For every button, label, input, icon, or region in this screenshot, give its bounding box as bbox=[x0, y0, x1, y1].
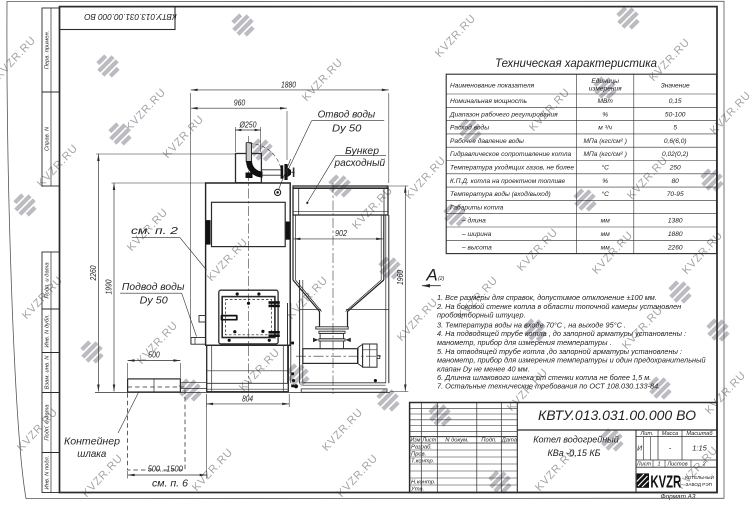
svg-text:Лит.: Лит. bbox=[639, 431, 653, 437]
svg-text:80: 80 bbox=[672, 178, 680, 185]
svg-text:2260: 2260 bbox=[89, 265, 98, 281]
svg-text:Лист: Лист bbox=[636, 462, 652, 468]
svg-text:50-100: 50-100 bbox=[665, 111, 686, 118]
svg-text:Подвод воды: Подвод воды bbox=[122, 282, 185, 293]
svg-text:Взам. инв. N: Взам. инв. N bbox=[44, 355, 50, 390]
svg-text:Значение: Значение bbox=[661, 82, 690, 89]
svg-text:мм: мм bbox=[601, 218, 611, 225]
svg-text:Т.контр.: Т.контр. bbox=[411, 459, 434, 465]
svg-text:Дата: Дата bbox=[501, 438, 518, 444]
svg-text:Гидравлическое сопротивление к: Гидравлическое сопротивление котла bbox=[450, 150, 571, 158]
svg-text:500...1500: 500...1500 bbox=[148, 465, 184, 474]
svg-text:МПа (кгс/см² ): МПа (кгс/см² ) bbox=[583, 138, 626, 145]
svg-text:см. п. 2: см. п. 2 bbox=[131, 225, 178, 237]
svg-text:3. Температура воды на входе: 3. Температура воды на входе 70°С , на в… bbox=[437, 321, 626, 330]
svg-text:КВа -0,15 КБ: КВа -0,15 КБ bbox=[548, 448, 601, 458]
svg-text:Номинальная мощность: Номинальная мощность bbox=[450, 98, 528, 105]
svg-text:Лист: Лист bbox=[421, 438, 436, 444]
svg-text:Расход воды: Расход воды bbox=[450, 124, 489, 132]
svg-text:измерения: измерения bbox=[589, 85, 622, 92]
svg-text:0,02(0,2): 0,02(0,2) bbox=[662, 151, 688, 158]
svg-text:1:15: 1:15 bbox=[692, 444, 707, 453]
svg-text:%: % bbox=[602, 111, 608, 118]
svg-text:Н.контр.: Н.контр. bbox=[411, 480, 436, 486]
svg-text:Справ. N: Справ. N bbox=[44, 126, 50, 151]
svg-text:К.П.Д. котла на проектном топл: К.П.Д. котла на проектном топливе bbox=[450, 178, 565, 185]
svg-text:Отвод воды: Отвод воды bbox=[318, 109, 376, 120]
svg-text:Температура воды (вход/выход): Температура воды (вход/выход) bbox=[450, 190, 551, 198]
svg-text:мм: мм bbox=[601, 231, 611, 238]
svg-text:Контейнер: Контейнер bbox=[64, 436, 120, 448]
svg-text:1880: 1880 bbox=[668, 231, 683, 238]
svg-text:Единицы: Единицы bbox=[591, 77, 619, 85]
svg-text:1380: 1380 bbox=[668, 218, 683, 225]
svg-text:Формат А3: Формат А3 bbox=[661, 494, 696, 501]
svg-text:Ø250: Ø250 bbox=[239, 120, 257, 129]
svg-text:ЗАВОД РЭП: ЗАВОД РЭП bbox=[686, 482, 712, 487]
svg-text:4. На подводящей трубе котла: 4. На подводящей трубе котла , до запорн… bbox=[437, 329, 686, 338]
svg-text:Пров.: Пров. bbox=[411, 452, 426, 458]
svg-text:шлака: шлака bbox=[77, 448, 106, 460]
svg-text:см. п. 6: см. п. 6 bbox=[152, 479, 188, 490]
svg-text:(2): (2) bbox=[438, 276, 444, 282]
svg-text:1880: 1880 bbox=[281, 80, 296, 89]
svg-text:250: 250 bbox=[669, 164, 681, 171]
svg-text:Инв. N подл.: Инв. N подл. bbox=[44, 456, 50, 490]
svg-text:МВт: МВт bbox=[598, 98, 614, 105]
svg-text:манометр, прибор для измерения: манометр, прибор для измерения температу… bbox=[437, 338, 612, 347]
svg-text:1. Все размеры для справок, д: 1. Все размеры для справок, допустимое о… bbox=[437, 293, 657, 302]
svg-text:Рабочее давление воды: Рабочее давление воды bbox=[450, 137, 524, 145]
svg-text:Изм: Изм bbox=[410, 438, 420, 444]
svg-text:Dy 50: Dy 50 bbox=[140, 294, 168, 306]
svg-text:N докум.: N докум. bbox=[445, 438, 468, 444]
svg-text:Котел водогрейный: Котел водогрейный bbox=[533, 435, 619, 445]
svg-text:Масштаб: Масштаб bbox=[686, 431, 713, 437]
svg-text:%: % bbox=[602, 178, 608, 185]
svg-text:А: А bbox=[425, 266, 437, 285]
svg-text:0,15: 0,15 bbox=[669, 98, 682, 105]
svg-text:2260: 2260 bbox=[667, 244, 683, 251]
svg-text:960: 960 bbox=[234, 98, 246, 107]
svg-text:Разраб.: Разраб. bbox=[411, 445, 432, 451]
svg-text:902: 902 bbox=[335, 229, 347, 238]
svg-text:мм: мм bbox=[601, 244, 611, 251]
svg-text:Листов: Листов bbox=[666, 462, 687, 468]
svg-text:Диапазон рабочего регулировани: Диапазон рабочего регулирования bbox=[449, 110, 558, 118]
svg-text:Dy 50: Dy 50 bbox=[332, 122, 362, 134]
svg-text:5: 5 bbox=[673, 125, 677, 132]
svg-text:0,6(6,0): 0,6(6,0) bbox=[664, 138, 687, 145]
svg-text:Температура уходящих газов, не: Температура уходящих газов, не более bbox=[450, 163, 574, 171]
svg-text:7. Остальные технические треб: 7. Остальные технические требования по О… bbox=[437, 382, 660, 391]
svg-text:Подп. и дата: Подп. и дата bbox=[44, 262, 50, 299]
svg-text:1990: 1990 bbox=[104, 279, 113, 294]
svg-text:1: 1 bbox=[657, 462, 660, 468]
svg-text:КОТЕЛЬНЫЙ: КОТЕЛЬНЫЙ bbox=[685, 473, 714, 480]
svg-text:1960: 1960 bbox=[396, 270, 405, 285]
svg-text:Утв.: Утв. bbox=[410, 487, 424, 493]
svg-text:2. На боковой стенке котла в: 2. На боковой стенке котла в области топ… bbox=[436, 302, 681, 311]
svg-text:Техническая характеристика: Техническая характеристика bbox=[495, 58, 657, 70]
svg-text:Наименование показателя: Наименование показателя bbox=[450, 82, 535, 89]
svg-text:КВТУ.013.031.00.000 ВО: КВТУ.013.031.00.000 ВО bbox=[84, 12, 177, 21]
svg-text:500: 500 bbox=[148, 351, 160, 360]
svg-text:МПа (кгс/см² ): МПа (кгс/см² ) bbox=[583, 151, 626, 158]
svg-text:Подп.: Подп. bbox=[481, 438, 496, 444]
svg-text:°С: °С bbox=[601, 190, 609, 198]
svg-text:Перв. примен.: Перв. примен. bbox=[44, 31, 50, 70]
svg-text:Инв. N дубл.: Инв. N дубл. bbox=[44, 314, 50, 348]
svg-text:Подп. и дата: Подп. и дата bbox=[44, 404, 50, 441]
svg-text:манометр, прибор для измерения: манометр, прибор для измерения температу… bbox=[437, 356, 706, 365]
svg-text:КВТУ.013.031.00.000 ВО: КВТУ.013.031.00.000 ВО bbox=[538, 407, 696, 423]
svg-text:пробоотборный штуцер.: пробоотборный штуцер. bbox=[437, 311, 526, 320]
svg-text:– длина: – длина bbox=[461, 217, 486, 225]
svg-text:°С: °С bbox=[601, 163, 609, 171]
svg-text:Масса: Масса bbox=[662, 431, 679, 437]
svg-text:м ³/ч: м ³/ч bbox=[598, 125, 612, 132]
svg-text:804: 804 bbox=[242, 394, 253, 403]
svg-text:расходный: расходный bbox=[334, 157, 386, 169]
svg-text:Габариты котла: Габариты котла bbox=[450, 203, 504, 211]
svg-text:70-95: 70-95 bbox=[667, 191, 684, 198]
svg-text:Бункер: Бункер bbox=[345, 145, 379, 157]
svg-text:KVZR: KVZR bbox=[650, 472, 681, 492]
svg-text:– высота: – высота bbox=[461, 244, 492, 251]
svg-text:– ширина: – ширина bbox=[461, 231, 492, 238]
